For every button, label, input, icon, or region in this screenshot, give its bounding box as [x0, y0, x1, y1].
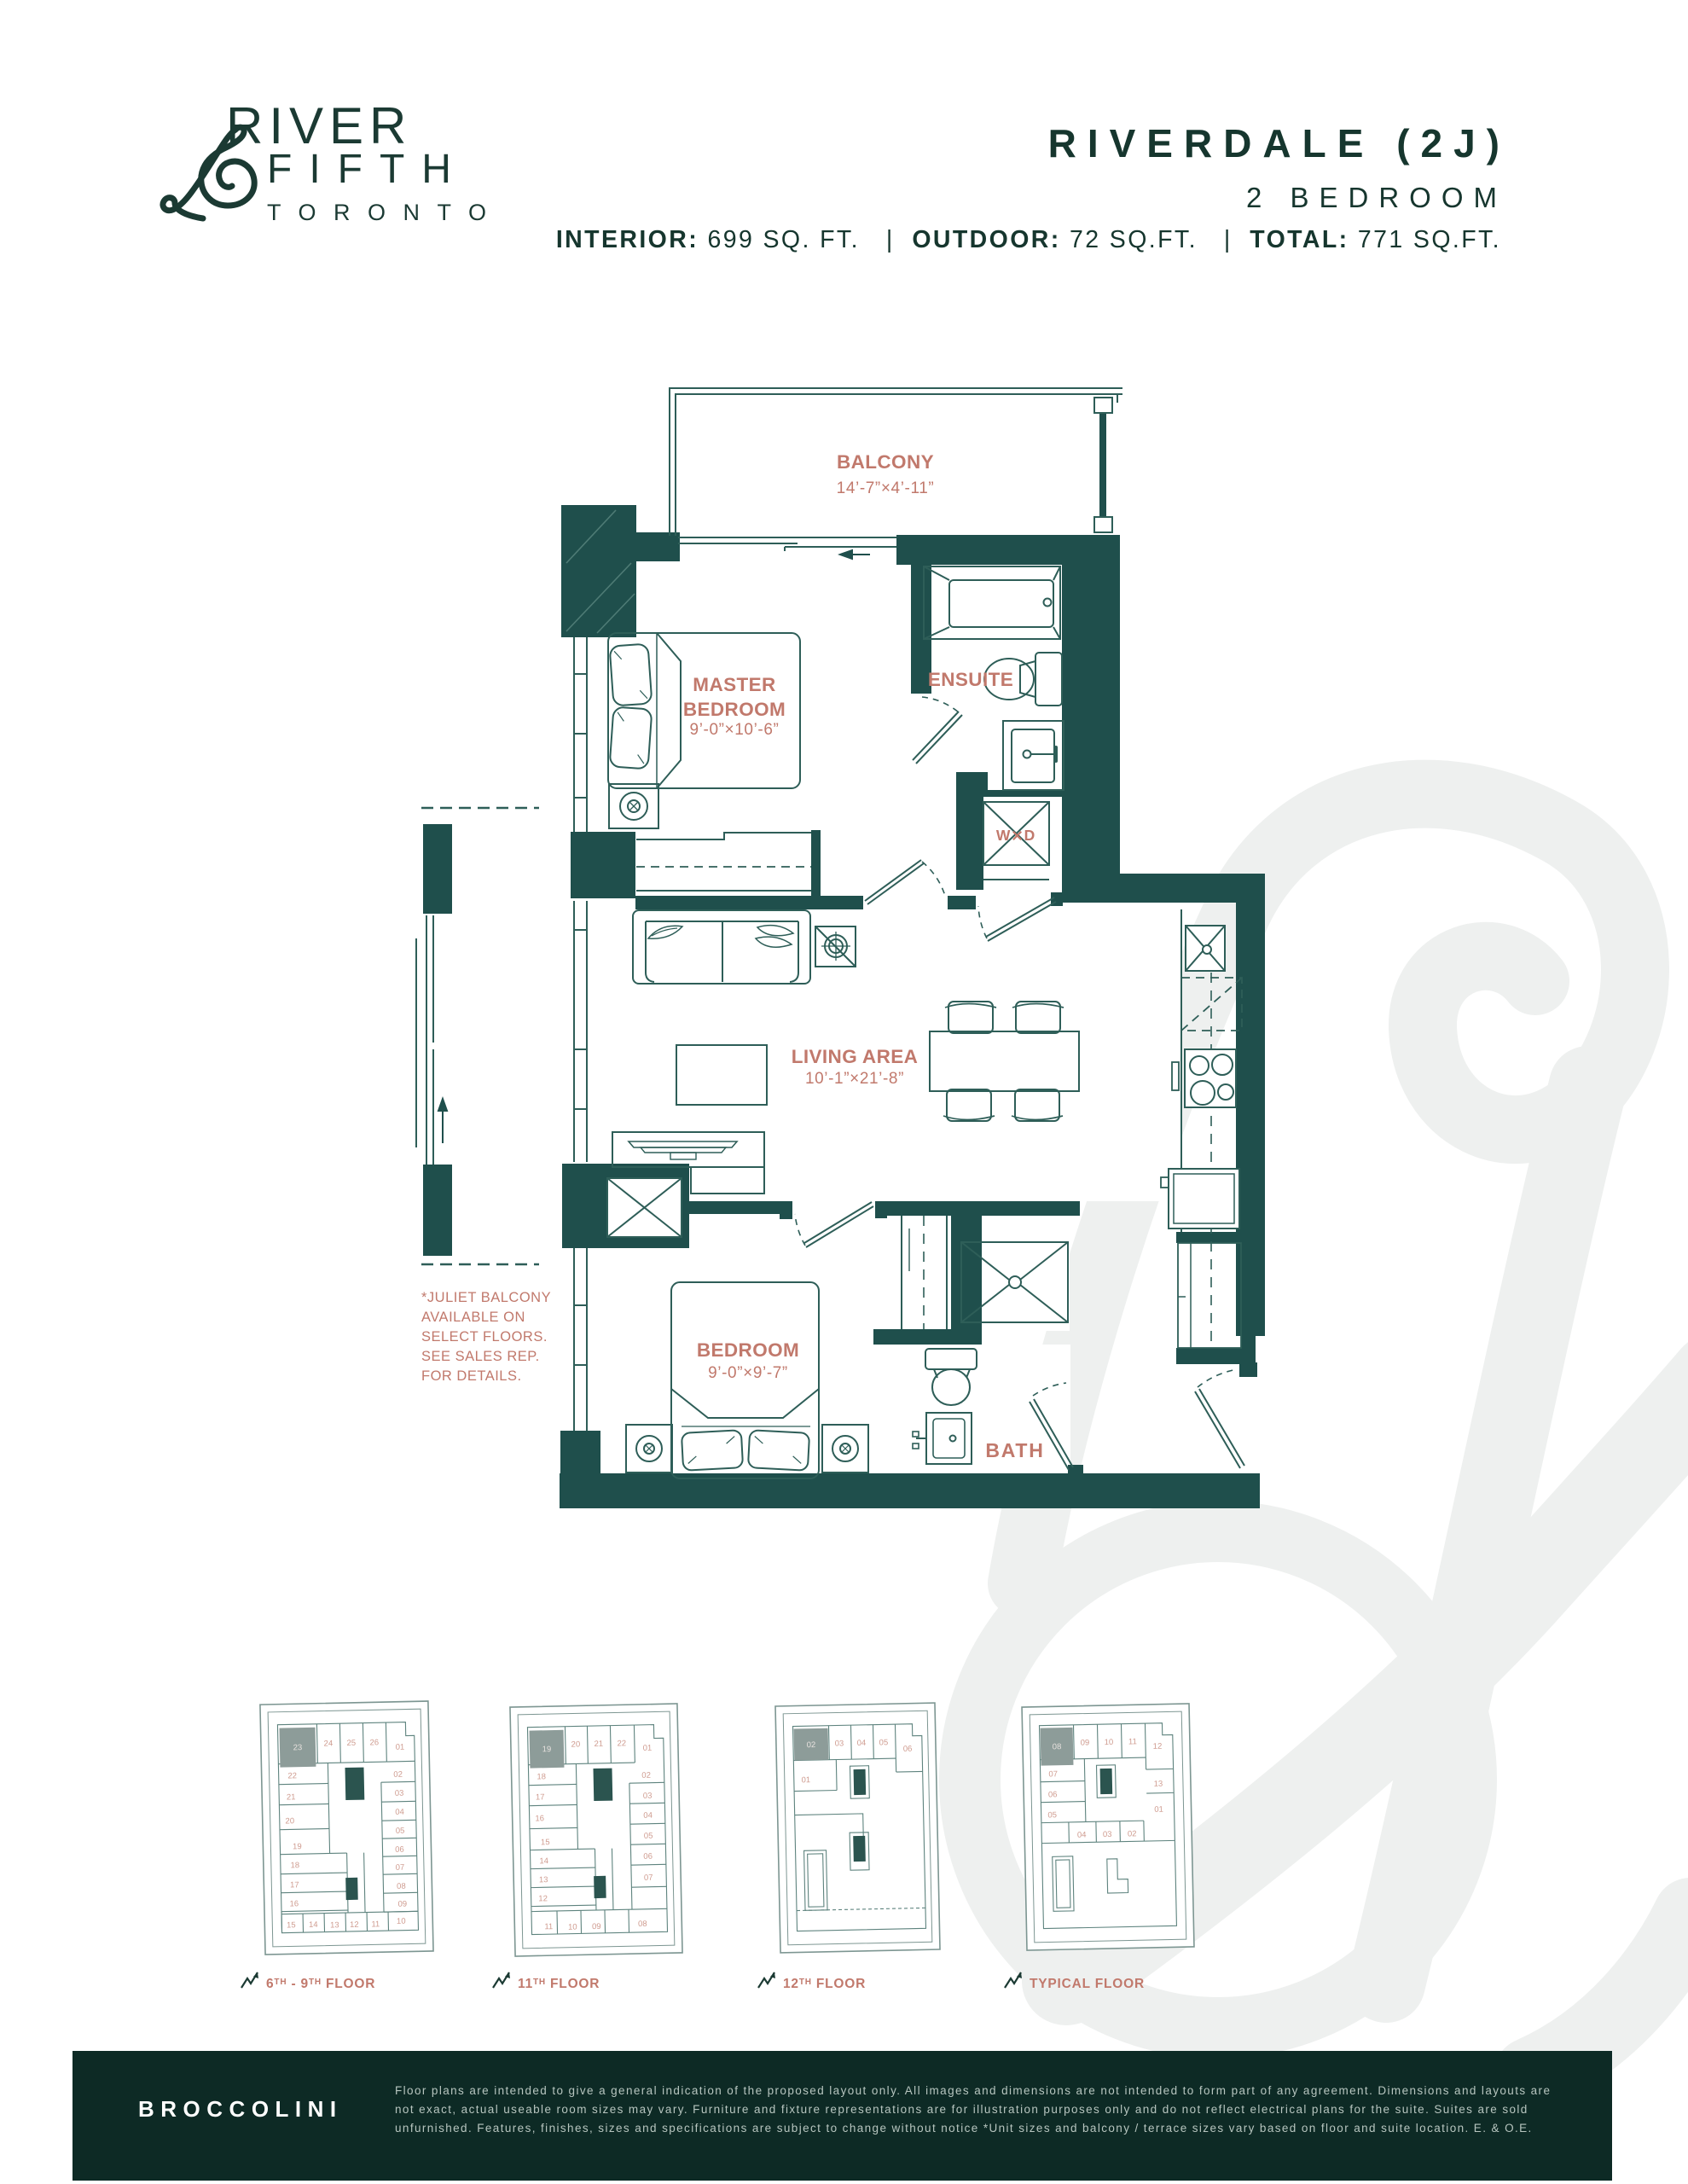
- svg-text:05: 05: [644, 1832, 653, 1841]
- svg-text:MASTER: MASTER: [693, 674, 775, 695]
- svg-text:RIVER: RIVER: [226, 97, 412, 154]
- svg-text:LIVING AREA: LIVING AREA: [792, 1046, 919, 1067]
- svg-text:12TH FLOOR: 12TH FLOOR: [783, 1977, 866, 1991]
- svg-text:14’-7”×4’-11”: 14’-7”×4’-11”: [837, 479, 935, 497]
- svg-text:25: 25: [346, 1739, 356, 1748]
- svg-text:04: 04: [643, 1811, 653, 1821]
- svg-text:10: 10: [1105, 1738, 1114, 1747]
- svg-text:05: 05: [396, 1827, 405, 1836]
- svg-text:07: 07: [1048, 1769, 1058, 1779]
- svg-text:RIVERDALE (2J): RIVERDALE (2J): [1048, 121, 1511, 166]
- svg-text:SEE SALES REP.: SEE SALES REP.: [421, 1349, 540, 1364]
- svg-text:15: 15: [541, 1838, 550, 1847]
- svg-text:17: 17: [536, 1792, 545, 1802]
- svg-text:ENSUITE: ENSUITE: [928, 669, 1013, 690]
- svg-text:24: 24: [323, 1739, 333, 1748]
- svg-text:15: 15: [287, 1920, 296, 1930]
- svg-text:21: 21: [594, 1740, 603, 1749]
- svg-text:Floor plans are intended to gi: Floor plans are intended to give a gener…: [395, 2084, 1551, 2097]
- svg-text:9’-0”×9’-7”: 9’-0”×9’-7”: [708, 1364, 788, 1382]
- svg-text:18: 18: [290, 1861, 299, 1870]
- svg-text:26: 26: [369, 1738, 379, 1747]
- svg-text:12: 12: [538, 1894, 548, 1903]
- svg-text:9’-0”×10’-6”: 9’-0”×10’-6”: [690, 721, 780, 739]
- svg-text:11: 11: [371, 1920, 380, 1929]
- svg-text:16: 16: [289, 1899, 299, 1908]
- svg-text:13: 13: [330, 1920, 339, 1930]
- svg-text:09: 09: [397, 1900, 407, 1909]
- svg-text:04: 04: [395, 1808, 404, 1817]
- svg-text:09: 09: [592, 1922, 601, 1931]
- svg-text:SELECT FLOORS.: SELECT FLOORS.: [421, 1329, 548, 1345]
- svg-text:23: 23: [293, 1743, 303, 1752]
- svg-text:TYPICAL FLOOR: TYPICAL FLOOR: [1030, 1977, 1145, 1991]
- svg-text:10: 10: [397, 1917, 406, 1926]
- svg-text:2 BEDROOM: 2 BEDROOM: [1246, 182, 1507, 213]
- svg-text:11: 11: [1128, 1737, 1137, 1746]
- svg-text:13: 13: [1154, 1780, 1163, 1789]
- svg-text:06: 06: [643, 1852, 653, 1862]
- svg-text:21: 21: [287, 1792, 296, 1802]
- svg-text:17: 17: [290, 1880, 299, 1890]
- svg-text:06: 06: [395, 1845, 404, 1855]
- svg-text:02: 02: [807, 1740, 816, 1750]
- svg-text:08: 08: [1053, 1742, 1062, 1751]
- svg-text:05: 05: [879, 1738, 889, 1747]
- svg-text:03: 03: [1103, 1830, 1112, 1839]
- svg-text:08: 08: [397, 1882, 406, 1891]
- svg-text:02: 02: [641, 1771, 651, 1780]
- svg-text:12: 12: [350, 1920, 359, 1930]
- svg-text:20: 20: [285, 1816, 294, 1826]
- svg-text:BEDROOM: BEDROOM: [683, 699, 786, 720]
- svg-text:BEDROOM: BEDROOM: [697, 1339, 799, 1361]
- svg-text:01: 01: [396, 1743, 405, 1752]
- svg-text:03: 03: [643, 1792, 653, 1801]
- svg-text:16: 16: [535, 1814, 544, 1823]
- svg-text:*JULIET BALCONY: *JULIET BALCONY: [421, 1290, 551, 1305]
- svg-text:11: 11: [544, 1922, 553, 1931]
- svg-text:05: 05: [1047, 1810, 1057, 1820]
- svg-text:06: 06: [903, 1745, 913, 1754]
- svg-text:18: 18: [537, 1772, 546, 1781]
- svg-text:unfurnished. Features, finishe: unfurnished. Features, finishes, sizes a…: [395, 2122, 1533, 2135]
- svg-text:08: 08: [638, 1920, 647, 1929]
- svg-text:01: 01: [1154, 1805, 1163, 1815]
- svg-text:02: 02: [393, 1770, 403, 1780]
- svg-text:14: 14: [309, 1920, 318, 1930]
- svg-text:07: 07: [396, 1863, 405, 1873]
- svg-text:03: 03: [395, 1789, 404, 1798]
- svg-text:14: 14: [539, 1856, 548, 1866]
- svg-text:FIFTH: FIFTH: [267, 147, 468, 192]
- svg-text:12: 12: [1153, 1742, 1163, 1751]
- svg-text:04: 04: [857, 1739, 867, 1748]
- svg-text:22: 22: [617, 1739, 626, 1748]
- svg-text:INTERIOR: 699 SQ. FT. | OUT: INTERIOR: 699 SQ. FT. | OUTDOOR: 72 SQ.F…: [556, 226, 1501, 253]
- svg-text:01: 01: [643, 1744, 653, 1753]
- svg-text:TORONTO: TORONTO: [267, 200, 504, 225]
- svg-text:13: 13: [539, 1875, 548, 1885]
- svg-text:W⨯D: W⨯D: [996, 827, 1035, 844]
- svg-text:03: 03: [835, 1739, 844, 1748]
- svg-text:10’-1”×21’-8”: 10’-1”×21’-8”: [805, 1070, 904, 1088]
- svg-text:04: 04: [1077, 1831, 1087, 1840]
- svg-text:10: 10: [568, 1922, 577, 1931]
- svg-text:11TH FLOOR: 11TH FLOOR: [518, 1977, 600, 1991]
- svg-text:not exact, actual useable room: not exact, actual useable room sizes may…: [395, 2103, 1528, 2116]
- svg-text:FOR DETAILS.: FOR DETAILS.: [421, 1368, 522, 1384]
- svg-text:22: 22: [287, 1771, 297, 1780]
- svg-text:07: 07: [644, 1873, 653, 1883]
- svg-text:BALCONY: BALCONY: [837, 451, 934, 473]
- svg-text:19: 19: [293, 1842, 302, 1851]
- svg-text:19: 19: [542, 1745, 552, 1754]
- svg-text:02: 02: [1128, 1829, 1137, 1838]
- svg-text:BATH: BATH: [985, 1439, 1044, 1461]
- svg-text:BROCCOLINI: BROCCOLINI: [138, 2096, 343, 2122]
- svg-text:20: 20: [571, 1740, 580, 1749]
- svg-text:AVAILABLE ON: AVAILABLE ON: [421, 1310, 525, 1325]
- svg-text:06: 06: [1048, 1790, 1058, 1799]
- svg-text:09: 09: [1081, 1738, 1090, 1747]
- svg-text:01: 01: [801, 1775, 810, 1785]
